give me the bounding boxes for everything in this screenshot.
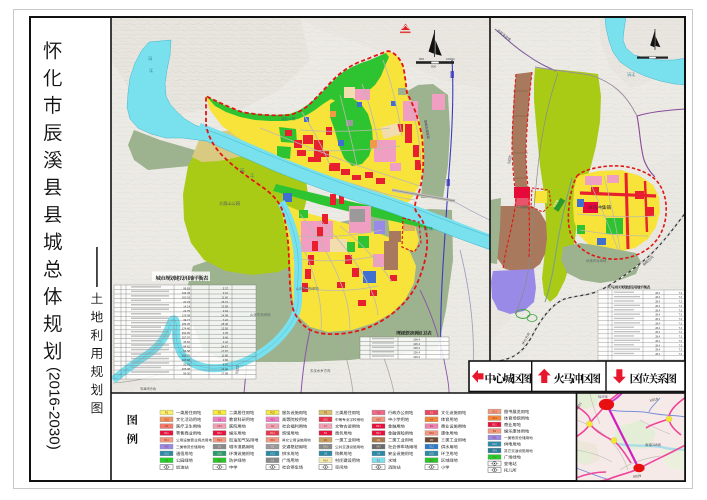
svg-text:W2: W2	[165, 445, 169, 449]
svg-text:3.10: 3.10	[223, 291, 229, 295]
svg-text:11.80: 11.80	[221, 354, 228, 358]
svg-text:106.4: 106.4	[413, 351, 420, 355]
svg-text:M1: M1	[324, 438, 328, 442]
svg-text:B14: B14	[270, 431, 275, 435]
svg-text:A1: A1	[377, 411, 381, 415]
svg-text:A51: A51	[217, 424, 222, 428]
svg-text:G2: G2	[218, 458, 222, 462]
svg-text:U21: U21	[270, 452, 275, 456]
svg-text:A21: A21	[492, 410, 497, 414]
svg-text:W1: W1	[493, 436, 497, 440]
svg-text:106.4: 106.4	[413, 346, 420, 350]
svg-text:162.16: 162.16	[182, 295, 191, 299]
svg-text:99.18: 99.18	[183, 286, 190, 290]
svg-text:H14: H14	[323, 458, 328, 462]
svg-text:U11: U11	[429, 445, 434, 449]
svg-text:S1: S1	[218, 445, 222, 449]
svg-text:23.75: 23.75	[183, 309, 190, 313]
svg-text:28.48: 28.48	[221, 322, 228, 326]
svg-text:28.4: 28.4	[655, 340, 660, 343]
svg-text:3.63: 3.63	[223, 309, 229, 313]
svg-text:G3: G3	[271, 458, 275, 462]
svg-text:U9: U9	[324, 452, 328, 456]
svg-text:B31: B31	[217, 431, 222, 435]
svg-text:E1: E1	[377, 458, 381, 462]
svg-text:R22: R22	[270, 411, 275, 415]
svg-text:11.60: 11.60	[221, 295, 228, 299]
svg-text:A22: A22	[164, 417, 169, 421]
svg-text:28.4: 28.4	[655, 344, 660, 347]
svg-text:M2: M2	[377, 438, 381, 442]
svg-text:A33: A33	[376, 417, 381, 421]
svg-text:28.4: 28.4	[655, 309, 660, 312]
svg-text:28.4: 28.4	[655, 318, 660, 321]
svg-text:28.4: 28.4	[655, 314, 660, 317]
svg-text:56.68: 56.68	[183, 349, 190, 353]
svg-text:24.67: 24.67	[221, 345, 228, 349]
svg-text:B21: B21	[376, 431, 381, 435]
svg-text:13.58: 13.58	[221, 304, 228, 308]
svg-text:U4: U4	[377, 452, 381, 456]
svg-text:A3: A3	[218, 417, 222, 421]
svg-text:96.30: 96.30	[183, 372, 190, 376]
svg-text:13.40: 13.40	[221, 367, 228, 371]
svg-text:R3: R3	[324, 411, 328, 415]
svg-text:B1: B1	[430, 424, 434, 428]
svg-text:189.35: 189.35	[182, 322, 191, 326]
svg-text:17.98: 17.98	[221, 372, 228, 376]
svg-text:17.87: 17.87	[221, 349, 228, 353]
svg-text:20.23: 20.23	[183, 300, 190, 304]
svg-text:1000m: 1000m	[446, 57, 456, 61]
svg-text:B41: B41	[164, 438, 169, 442]
svg-text:M3: M3	[430, 438, 434, 442]
svg-text:6.97: 6.97	[223, 363, 229, 367]
svg-text:S223: S223	[235, 365, 240, 374]
svg-text:4.42: 4.42	[223, 340, 229, 344]
svg-text:12.50: 12.50	[221, 327, 228, 331]
svg-text:S41: S41	[323, 445, 328, 449]
svg-text:B11: B11	[164, 431, 169, 435]
svg-text:106.4: 106.4	[413, 337, 420, 341]
svg-text:28.4: 28.4	[655, 305, 660, 308]
svg-text:129.08: 129.08	[182, 313, 191, 317]
svg-text:A32: A32	[323, 417, 328, 421]
svg-text:A31: A31	[270, 417, 275, 421]
svg-text:14.14: 14.14	[183, 304, 190, 308]
svg-text:A2: A2	[430, 411, 434, 415]
svg-text:U15: U15	[164, 452, 169, 456]
svg-text:39.77: 39.77	[183, 318, 190, 322]
svg-text:A4: A4	[430, 417, 434, 421]
svg-text:257.97: 257.97	[182, 336, 191, 340]
svg-text:R1: R1	[165, 411, 169, 415]
svg-text:28.4: 28.4	[655, 301, 660, 304]
svg-text:B2: B2	[324, 431, 328, 435]
svg-text:S49: S49	[492, 449, 497, 453]
svg-text:A5: A5	[165, 424, 169, 428]
svg-text:7.47: 7.47	[223, 318, 229, 322]
svg-text:205.08: 205.08	[182, 367, 191, 371]
svg-text:R2: R2	[218, 411, 222, 415]
svg-text:174.40: 174.40	[182, 327, 191, 331]
svg-text:28.4: 28.4	[655, 327, 660, 330]
svg-text:94.62: 94.62	[183, 345, 190, 349]
svg-text:A6: A6	[271, 424, 275, 428]
svg-text:G1: G1	[165, 458, 169, 462]
svg-text:45.84: 45.84	[183, 340, 190, 344]
svg-text:28.4: 28.4	[655, 349, 660, 352]
svg-text:U22: U22	[429, 452, 434, 456]
svg-text:28.4: 28.4	[655, 336, 660, 339]
svg-text:S3: S3	[271, 445, 275, 449]
svg-text:A7: A7	[324, 424, 328, 428]
svg-text:9.40: 9.40	[223, 336, 229, 340]
svg-text:192.76: 192.76	[182, 354, 191, 358]
svg-text:292.95: 292.95	[182, 331, 191, 335]
svg-text:28.4: 28.4	[655, 353, 660, 356]
svg-text:B11: B11	[492, 423, 497, 427]
svg-text:U12: U12	[492, 442, 497, 446]
svg-text:28.4: 28.4	[655, 296, 660, 299]
svg-text:500: 500	[431, 65, 436, 69]
svg-text:S42: S42	[376, 445, 381, 449]
svg-text:B42: B42	[217, 438, 222, 442]
svg-text:2.82: 2.82	[223, 358, 229, 362]
svg-text:196.33: 196.33	[182, 291, 191, 295]
svg-text:20.70: 20.70	[183, 363, 190, 367]
svg-text:106.4: 106.4	[413, 355, 420, 359]
svg-text:U22: U22	[217, 452, 222, 456]
svg-text:EG: EG	[430, 458, 434, 462]
svg-text:5.37: 5.37	[223, 286, 229, 290]
svg-text:2.35: 2.35	[223, 331, 229, 335]
svg-text:165.68: 165.68	[182, 358, 191, 362]
svg-text:B21: B21	[376, 424, 381, 428]
svg-text:28.4: 28.4	[655, 292, 660, 295]
svg-text:28.4: 28.4	[655, 322, 660, 325]
svg-text:A41: A41	[492, 416, 497, 420]
svg-text:500: 500	[419, 57, 424, 61]
svg-text:G: G	[493, 455, 495, 459]
svg-text:B49: B49	[270, 438, 275, 442]
svg-text:B32: B32	[429, 431, 434, 435]
svg-text:B3: B3	[493, 429, 497, 433]
svg-text:106.4: 106.4	[413, 342, 420, 346]
svg-text:24.98: 24.98	[221, 313, 228, 317]
svg-text:(2016-2030): (2016-2030)	[46, 367, 63, 450]
svg-text:15.72: 15.72	[221, 300, 228, 304]
svg-text:28.4: 28.4	[655, 331, 660, 334]
